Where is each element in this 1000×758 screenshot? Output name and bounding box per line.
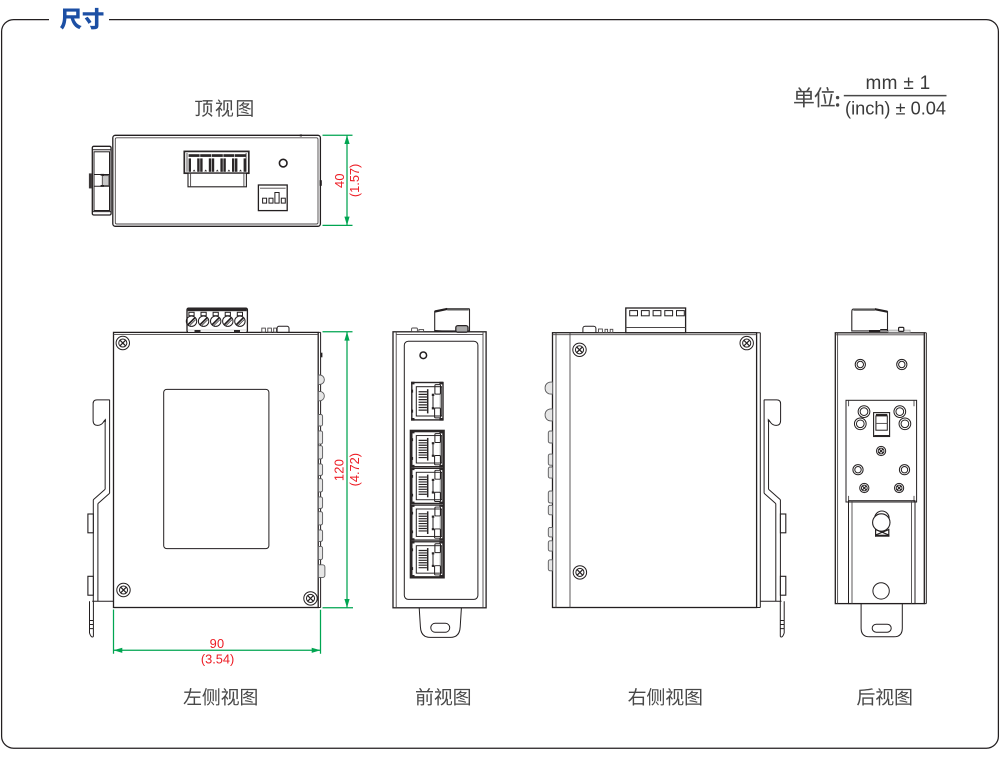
svg-text:90: 90 [210, 636, 225, 651]
svg-text:mm ± 1: mm ± 1 [865, 73, 930, 94]
svg-text:40: 40 [332, 173, 347, 188]
svg-text:(3.54): (3.54) [201, 651, 234, 666]
svg-text:(1.57): (1.57) [347, 164, 362, 197]
svg-text:(4.72): (4.72) [347, 453, 362, 486]
svg-text:(inch) ± 0.04: (inch) ± 0.04 [845, 98, 946, 118]
svg-text:120: 120 [331, 459, 346, 481]
